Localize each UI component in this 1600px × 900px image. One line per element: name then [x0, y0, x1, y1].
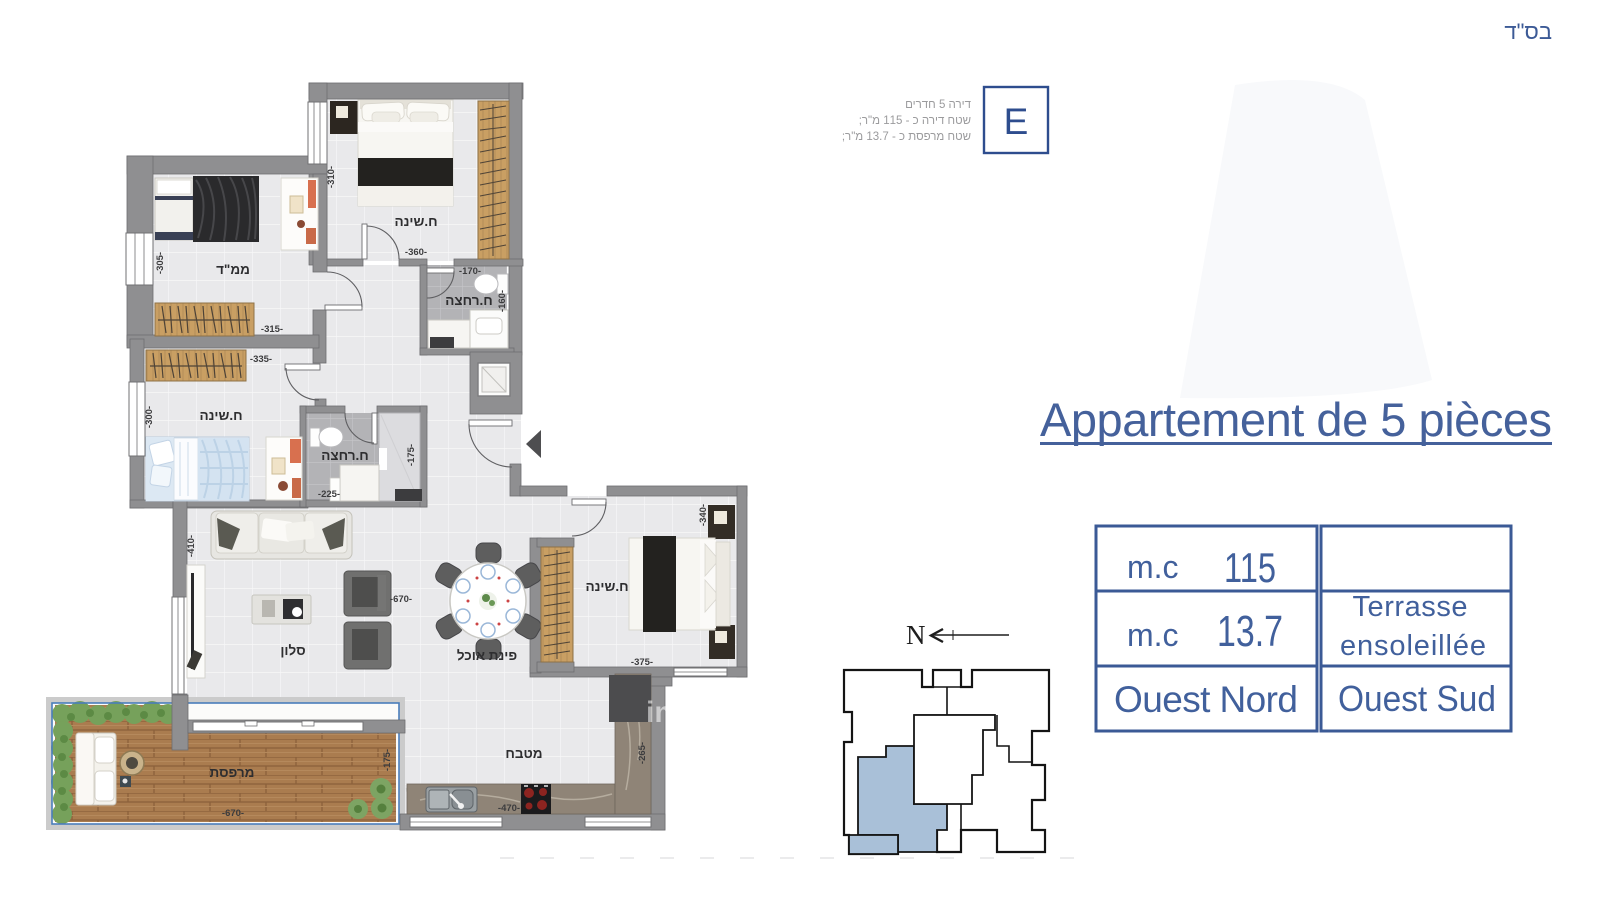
svg-text:-375-: -375-	[631, 657, 653, 668]
svg-text:מטבח: מטבח	[505, 746, 542, 761]
svg-text:-360-: -360-	[405, 247, 427, 258]
svg-text:m.c: m.c	[1127, 549, 1179, 585]
svg-text:N: N	[906, 620, 926, 650]
svg-text:ח.שינה: ח.שינה	[585, 579, 628, 594]
svg-text:Ouest Nord: Ouest Nord	[1114, 679, 1298, 720]
svg-text:ממ"ד: ממ"ד	[216, 262, 250, 277]
svg-text:סלון: סלון	[280, 643, 305, 658]
svg-text:שטח מרפסת כ - 13.7 מ"ר;: שטח מרפסת כ - 13.7 מ"ר;	[842, 131, 971, 143]
svg-text:-170-: -170-	[459, 266, 481, 277]
svg-text:בס"ד: בס"ד	[1504, 19, 1552, 44]
svg-text:Ouest Sud: Ouest Sud	[1338, 678, 1496, 719]
svg-text:פינת אוכל: פינת אוכל	[457, 648, 518, 663]
svg-text:-670-: -670-	[390, 594, 412, 605]
svg-text:-225-: -225-	[318, 489, 340, 500]
svg-text:שטח דירה כ - 115 מ"ר;: שטח דירה כ - 115 מ"ר;	[859, 115, 971, 127]
svg-text:Appartement de 5 pièces: Appartement de 5 pièces	[1040, 393, 1552, 446]
svg-text:-310-: -310-	[326, 166, 337, 188]
svg-text:m.c: m.c	[1127, 617, 1179, 653]
svg-text:im: im	[646, 696, 681, 729]
svg-text:-305-: -305-	[155, 252, 166, 274]
svg-text:-670-: -670-	[222, 808, 244, 819]
svg-text:-265-: -265-	[637, 742, 648, 764]
svg-text:ח.שינה: ח.שינה	[199, 408, 242, 423]
svg-text:ח.רחצה: ח.רחצה	[445, 293, 492, 308]
svg-text:-410-: -410-	[186, 535, 197, 557]
svg-text:-335-: -335-	[250, 354, 272, 365]
svg-text:115: 115	[1224, 544, 1276, 591]
svg-text:ח.רחצה: ח.רחצה	[321, 448, 368, 463]
svg-text:E: E	[1004, 101, 1029, 142]
svg-text:13.7: 13.7	[1217, 607, 1283, 656]
svg-text:-470-: -470-	[498, 803, 520, 814]
svg-text:ח.שינה: ח.שינה	[394, 214, 437, 229]
svg-text:ensoleillée: ensoleillée	[1340, 630, 1486, 662]
svg-text:-340-: -340-	[698, 504, 709, 526]
svg-text:-175-: -175-	[406, 444, 417, 466]
svg-text:מרפסת: מרפסת	[210, 765, 255, 780]
svg-text:Terrasse: Terrasse	[1353, 591, 1468, 623]
svg-text:-300-: -300-	[144, 406, 155, 428]
svg-text:-175-: -175-	[382, 749, 393, 771]
svg-text:-315-: -315-	[261, 324, 283, 335]
svg-text:-160-: -160-	[497, 290, 508, 312]
svg-text:דירה 5 חדרים: דירה 5 חדרים	[905, 99, 972, 111]
